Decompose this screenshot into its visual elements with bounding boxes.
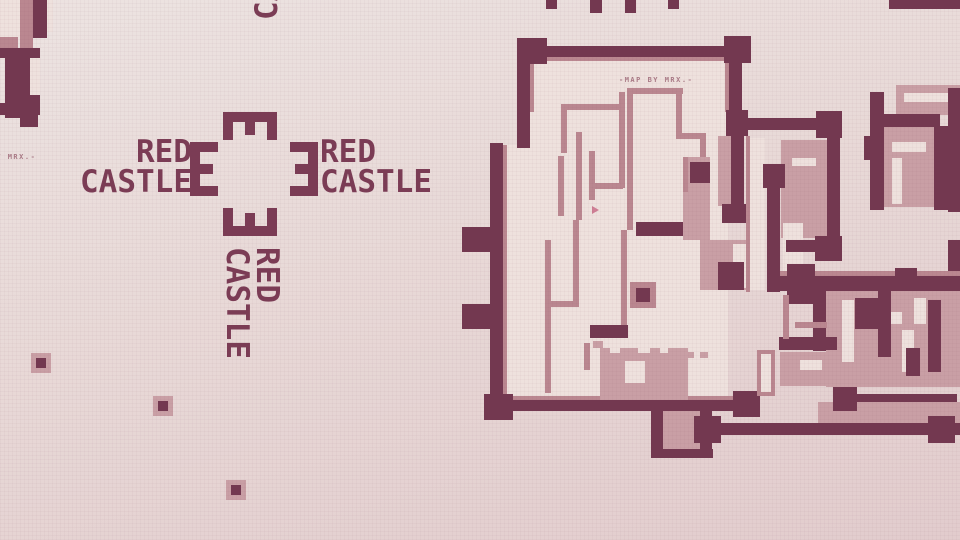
map-credit-partial: -MAP BY MRX.- xyxy=(0,153,36,161)
game-map-view[interactable]: RED CASTLE RED CASTLE RED CASTLE RED CAS… xyxy=(0,0,960,540)
partial-castle-top-left xyxy=(0,0,53,127)
map-marker-squares xyxy=(31,353,246,500)
map-credit: -MAP BY MRX.- xyxy=(619,76,693,84)
top-edge-battlements xyxy=(546,0,960,13)
castle-map-canvas xyxy=(0,0,960,540)
